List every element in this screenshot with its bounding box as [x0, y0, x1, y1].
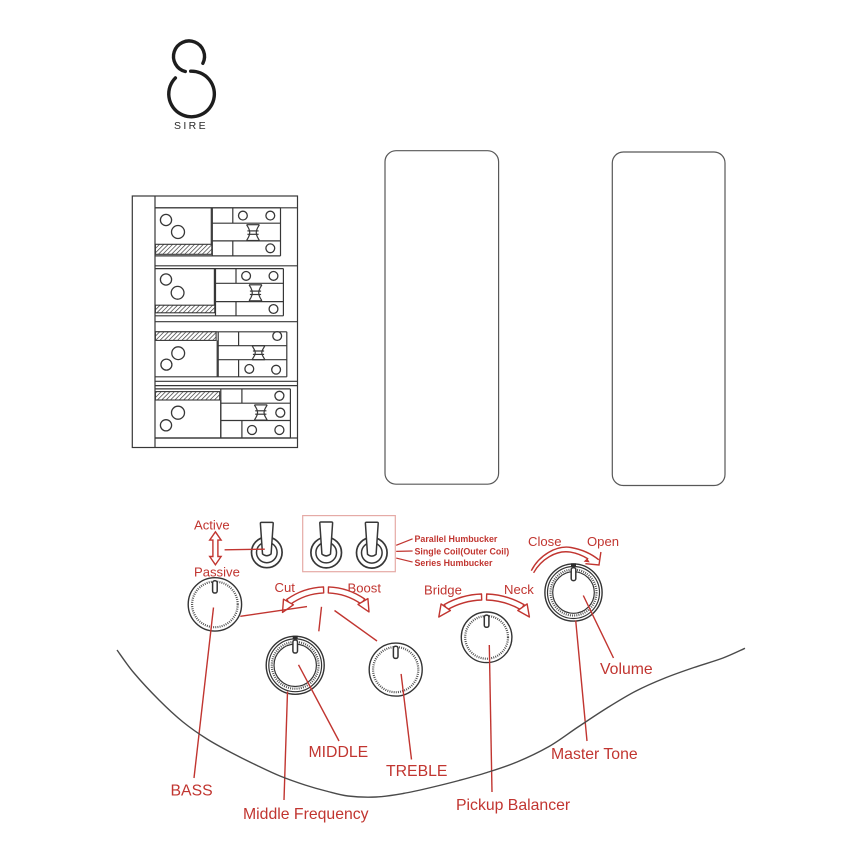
svg-text:Pickup Balancer: Pickup Balancer: [456, 797, 570, 814]
svg-text:Passive: Passive: [194, 565, 240, 580]
svg-text:Parallel Humbucker: Parallel Humbucker: [415, 534, 498, 544]
svg-text:Bridge: Bridge: [424, 583, 462, 598]
svg-text:BASS: BASS: [171, 783, 213, 800]
svg-text:Close: Close: [528, 534, 561, 549]
svg-text:Neck: Neck: [504, 582, 534, 597]
svg-text:Master Tone: Master Tone: [551, 746, 638, 763]
svg-text:Single Coil(Outer Coil): Single Coil(Outer Coil): [415, 546, 510, 556]
svg-text:Volume: Volume: [600, 661, 653, 678]
svg-text:Middle Frequency: Middle Frequency: [243, 806, 369, 823]
svg-text:Cut: Cut: [275, 580, 296, 595]
svg-text:Active: Active: [194, 518, 230, 533]
svg-text:TREBLE: TREBLE: [386, 763, 447, 780]
svg-text:Series Humbucker: Series Humbucker: [415, 558, 493, 568]
svg-text:Open: Open: [587, 534, 619, 549]
svg-text:MIDDLE: MIDDLE: [309, 744, 369, 761]
svg-text:SIRE: SIRE: [174, 120, 208, 132]
